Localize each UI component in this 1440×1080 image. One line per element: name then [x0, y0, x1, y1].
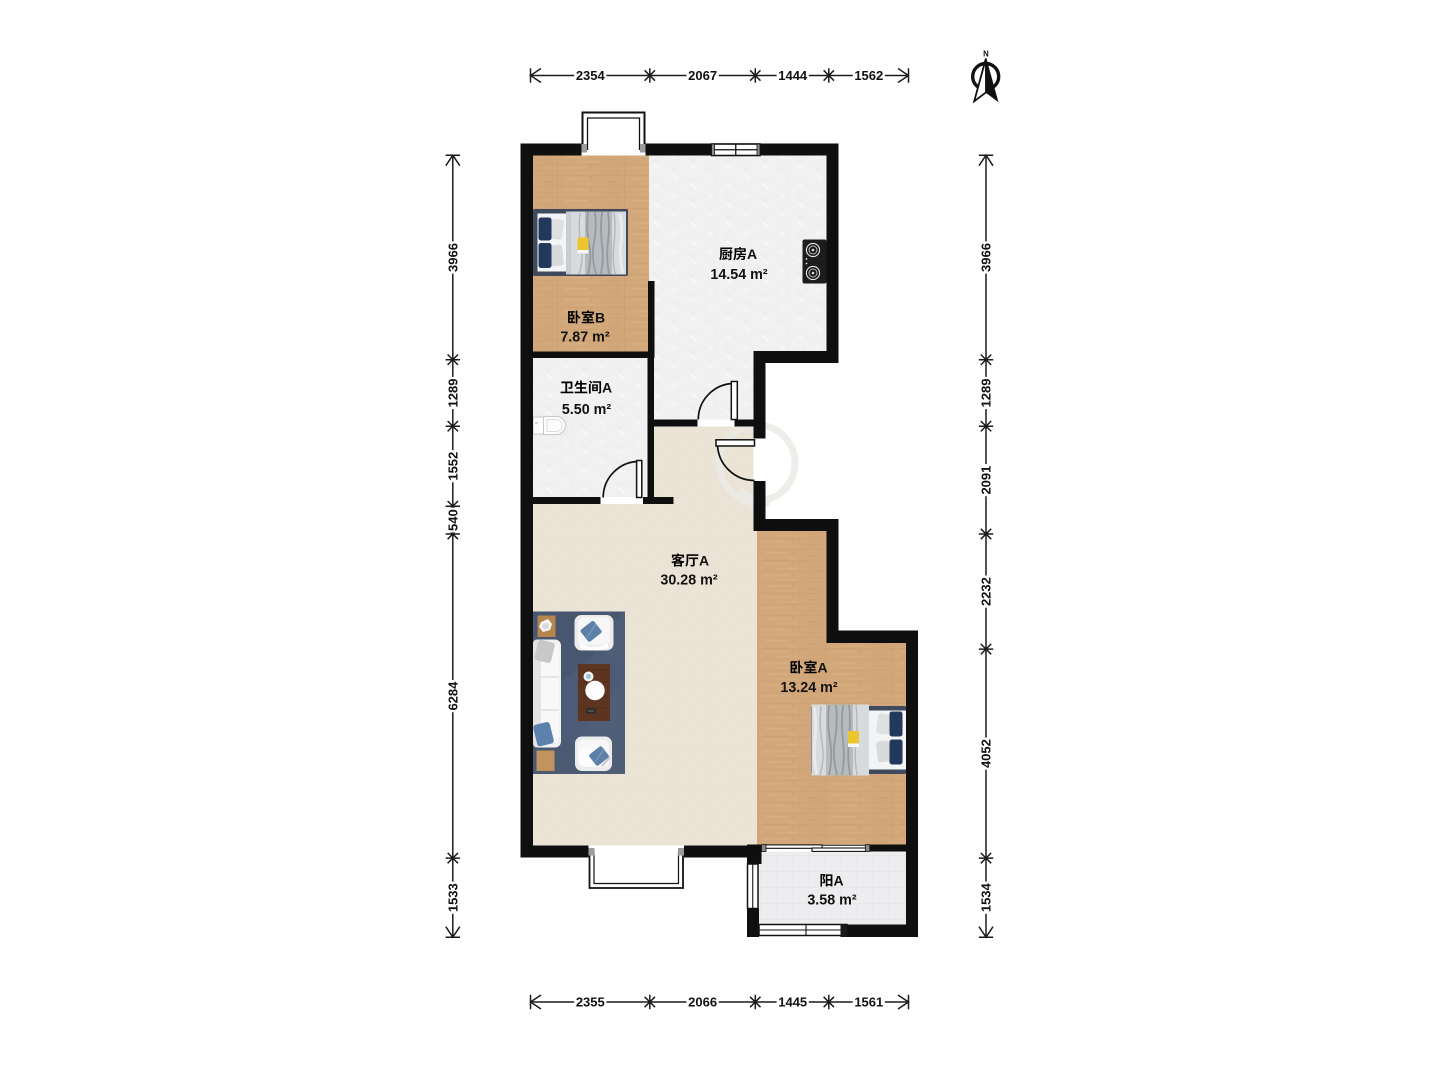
svg-text:A: A	[699, 552, 709, 568]
svg-text:14.54 m²: 14.54 m²	[710, 267, 767, 283]
svg-text:A: A	[818, 659, 828, 675]
svg-text:N: N	[983, 50, 989, 59]
svg-text:6284: 6284	[445, 681, 460, 711]
svg-text:2066: 2066	[688, 995, 717, 1010]
svg-text:1534: 1534	[979, 882, 994, 912]
svg-text:B: B	[595, 309, 605, 325]
svg-text:A: A	[834, 872, 844, 888]
svg-text:2091: 2091	[979, 466, 994, 495]
svg-text:5.50 m²: 5.50 m²	[562, 402, 612, 418]
svg-text:1289: 1289	[979, 379, 994, 408]
svg-text:A: A	[602, 379, 612, 395]
svg-text:1552: 1552	[445, 452, 460, 481]
svg-text:1533: 1533	[445, 883, 460, 912]
svg-text:540: 540	[445, 509, 460, 531]
svg-text:30.28 m²: 30.28 m²	[660, 573, 717, 589]
svg-text:A: A	[747, 246, 757, 262]
svg-text:2232: 2232	[979, 577, 994, 606]
svg-text:2067: 2067	[688, 68, 717, 83]
svg-text:2355: 2355	[576, 995, 605, 1010]
svg-text:4052: 4052	[979, 739, 994, 768]
svg-text:3966: 3966	[979, 243, 994, 272]
svg-text:7.87 m²: 7.87 m²	[560, 330, 610, 346]
svg-text:3966: 3966	[445, 243, 460, 272]
svg-text:1444: 1444	[778, 68, 808, 83]
svg-text:1289: 1289	[445, 379, 460, 408]
svg-text:3.58 m²: 3.58 m²	[807, 893, 857, 909]
svg-text:1561: 1561	[854, 995, 883, 1010]
svg-text:2354: 2354	[576, 68, 606, 83]
svg-text:1445: 1445	[778, 995, 807, 1010]
svg-text:1562: 1562	[854, 68, 883, 83]
svg-text:13.24 m²: 13.24 m²	[780, 680, 837, 696]
